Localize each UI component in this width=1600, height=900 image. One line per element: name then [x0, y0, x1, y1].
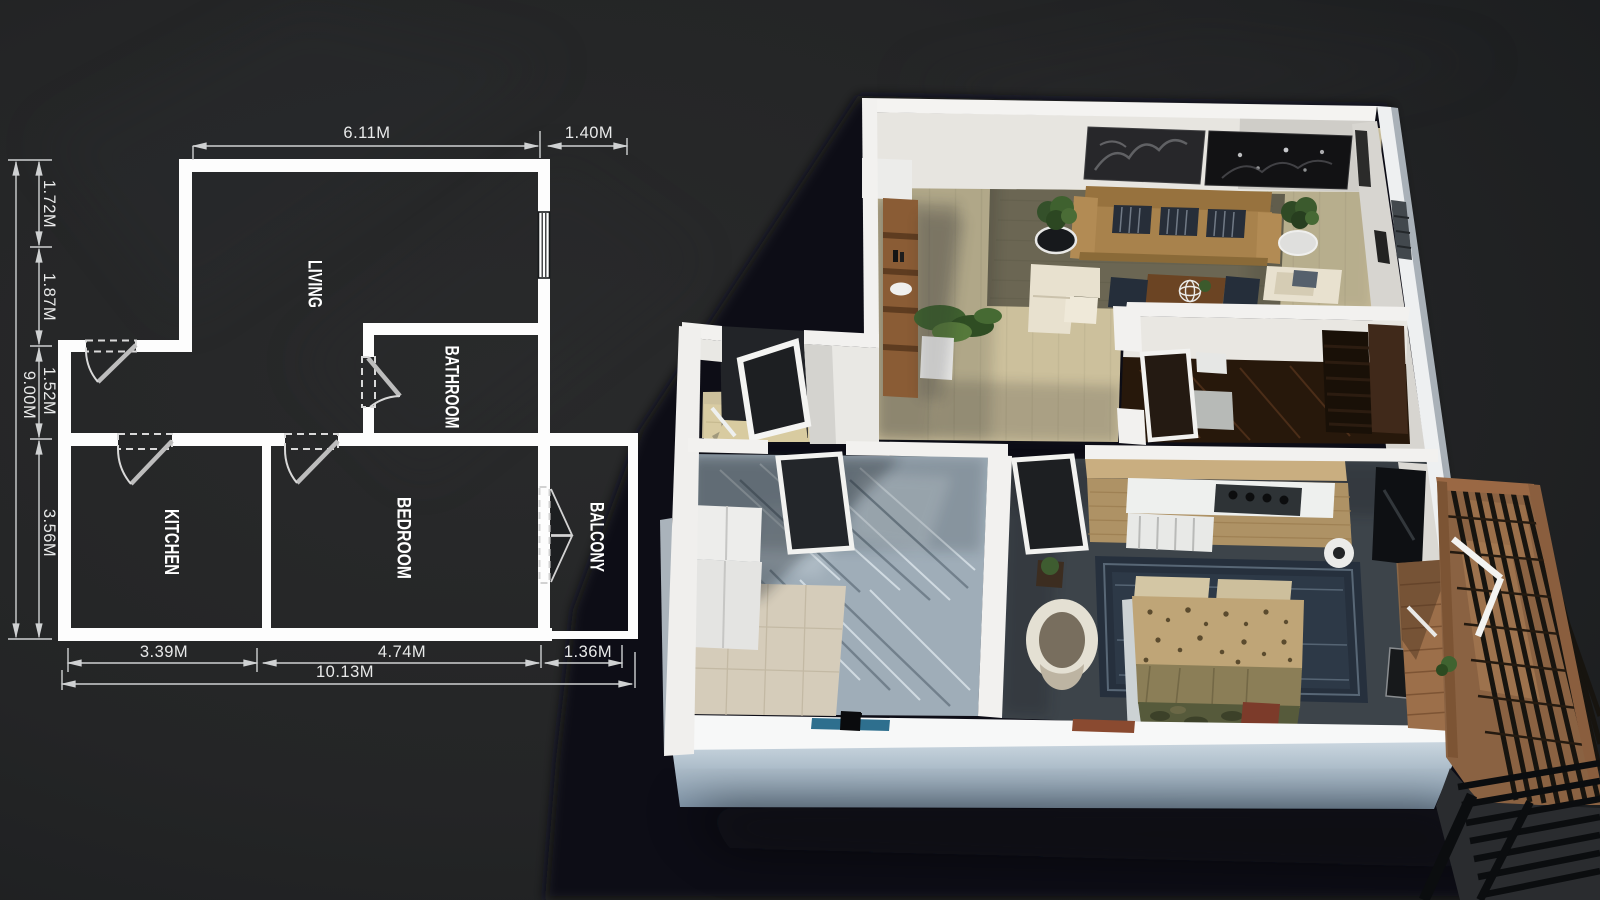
svg-text:BATHROOM: BATHROOM — [441, 346, 462, 429]
svg-text:6.11M: 6.11M — [343, 124, 390, 142]
svg-text:10.13M: 10.13M — [316, 663, 374, 681]
svg-text:3.39M: 3.39M — [140, 643, 188, 661]
svg-text:BEDROOM: BEDROOM — [393, 497, 414, 579]
svg-text:1.72M: 1.72M — [40, 180, 58, 228]
svg-text:KITCHEN: KITCHEN — [160, 509, 182, 575]
svg-text:1.87M: 1.87M — [40, 273, 58, 321]
svg-text:1.36M: 1.36M — [564, 643, 612, 661]
svg-text:1.40M: 1.40M — [565, 124, 613, 142]
svg-text:4.74M: 4.74M — [378, 643, 426, 661]
svg-text:LIVING: LIVING — [304, 260, 325, 308]
svg-text:1.52M: 1.52M — [40, 367, 58, 415]
svg-text:BALCONY: BALCONY — [586, 502, 607, 572]
svg-text:3.56M: 3.56M — [40, 509, 58, 557]
svg-text:9.00M: 9.00M — [20, 371, 38, 419]
